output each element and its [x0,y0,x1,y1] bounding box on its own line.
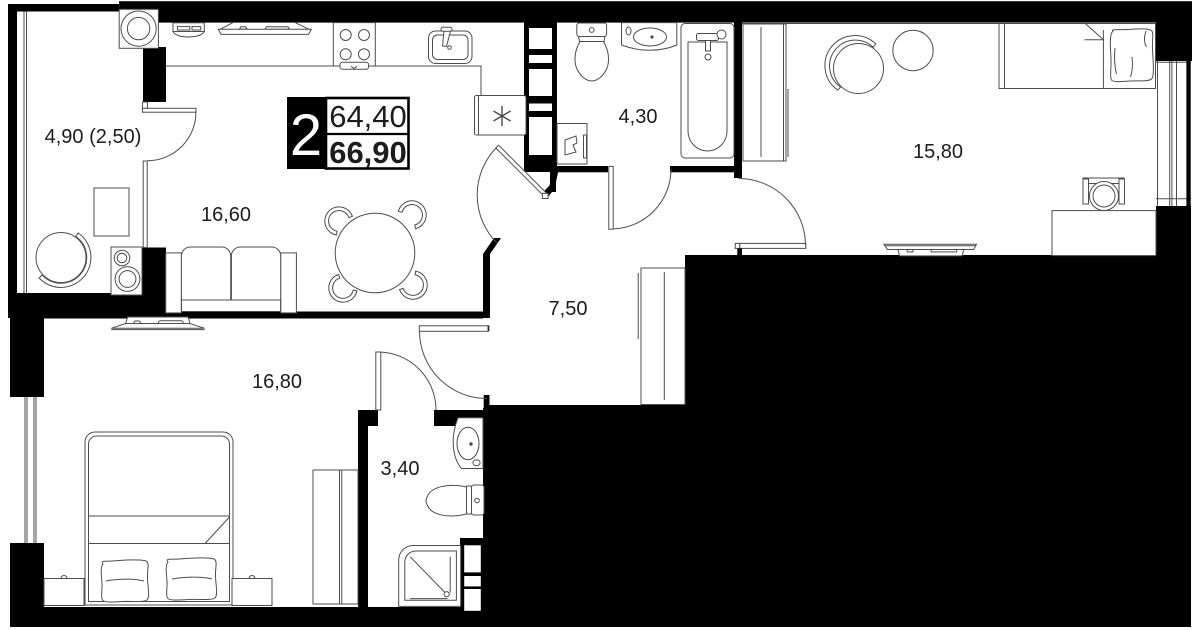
svg-text:64,40: 64,40 [329,99,407,134]
svg-text:3,40: 3,40 [381,458,420,480]
svg-text:16,60: 16,60 [201,204,251,226]
svg-text:7,50: 7,50 [549,298,588,320]
svg-text:2: 2 [290,103,322,168]
svg-text:66,90: 66,90 [329,135,407,170]
svg-text:15,80: 15,80 [913,141,963,163]
svg-text:4,30: 4,30 [619,106,658,128]
svg-text:16,80: 16,80 [252,371,302,393]
svg-text:4,90 (2,50): 4,90 (2,50) [45,126,142,148]
